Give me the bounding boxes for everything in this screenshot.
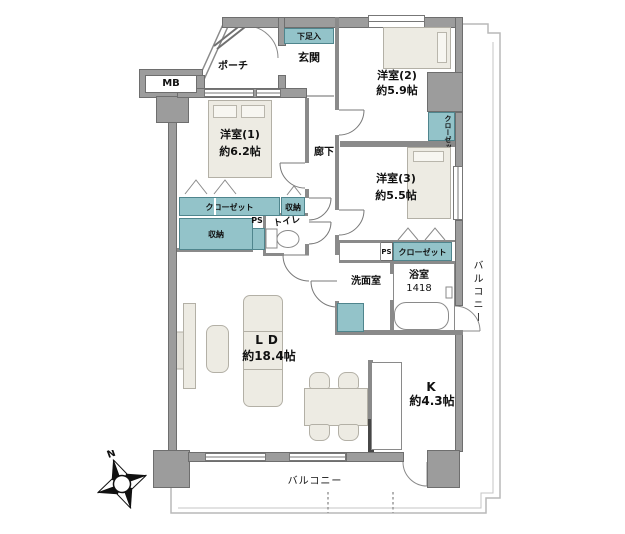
toilet-door-arc	[309, 222, 331, 244]
closet-room3-label: クローゼット	[394, 248, 451, 257]
dining-table	[304, 388, 368, 426]
washing-machine	[337, 303, 364, 332]
pillow	[437, 32, 447, 63]
dining-chair	[338, 424, 359, 441]
storage-door-arc	[309, 198, 331, 220]
wall	[455, 220, 463, 306]
meter-box-label: MB	[145, 75, 197, 93]
room3-size: 約5.5帖	[364, 190, 428, 203]
shoe-cabinet: 下足入	[284, 28, 334, 44]
porch-label: ポーチ	[210, 61, 256, 73]
entrance-label: 玄関	[286, 52, 332, 65]
dining-chair	[309, 424, 330, 441]
pipe-space-bath-label: PS	[381, 248, 392, 256]
ld-name: LD	[234, 334, 304, 348]
pillow	[213, 105, 237, 118]
ld-size: 約18.4帖	[234, 350, 304, 364]
dining-chair	[338, 372, 359, 389]
corridor-label: 廊下	[308, 147, 340, 159]
pillow	[413, 151, 444, 162]
shoe-cabinet-label: 下足入	[285, 32, 333, 41]
kitchen-counter	[371, 362, 402, 450]
bathroom-size: 1418	[397, 283, 441, 295]
pipe-space-corridor	[252, 228, 265, 250]
wall	[455, 112, 463, 168]
wall	[222, 17, 280, 28]
storage-large-label: 収納	[180, 230, 252, 239]
pillow	[241, 105, 265, 118]
balcony-right-label: バルコニー	[464, 242, 482, 342]
storage-small-label: 収納	[282, 203, 304, 212]
room2-door-arc	[339, 110, 364, 135]
sofa-seam	[244, 331, 282, 332]
closet-divider	[214, 198, 216, 215]
balcony-divider-dashed	[328, 492, 393, 513]
floor-plan: 下足入 クローゼット 収納 収納 PS クローゼット PS クローゼット MB …	[0, 0, 625, 534]
pipe-space-corridor-label: PS	[247, 216, 267, 225]
corridor-wall	[335, 17, 339, 110]
washroom-label: 洗面室	[340, 276, 392, 288]
corridor-wall	[305, 244, 309, 255]
wall-corner-block	[427, 450, 460, 488]
storage-small: 収納	[281, 197, 305, 216]
room3-door-arc	[339, 210, 364, 235]
wall-bottom	[346, 452, 404, 462]
compass-north-label: N	[106, 450, 118, 461]
closet1-fold-marks	[185, 180, 301, 195]
bathroom-label: 浴室	[397, 270, 441, 282]
sofa-seam	[244, 369, 282, 370]
wall	[455, 17, 463, 74]
washroom-door-arc	[311, 281, 337, 307]
wall	[156, 96, 189, 123]
balcony-bottom-label: バルコニー	[280, 476, 350, 488]
room3-name: 洋室(3)	[364, 173, 428, 186]
wall-left	[168, 121, 177, 452]
room2-name: 洋室(2)	[365, 70, 429, 83]
room1-door-arc	[280, 163, 305, 188]
room1-size: 約6.2帖	[208, 146, 272, 159]
kitchen-size: 約4.3帖	[403, 395, 461, 409]
toilet-label: トイレ	[267, 214, 306, 230]
dining-chair	[309, 372, 330, 389]
toilet-bottom-wall	[263, 253, 284, 256]
entrance-door-arc	[245, 26, 278, 58]
room2-size: 約5.9帖	[365, 85, 429, 98]
washbasin-counter	[339, 242, 381, 261]
window-room1-small	[256, 89, 281, 97]
toilet-bowl	[277, 231, 299, 248]
window-room3	[453, 166, 463, 220]
closet3-fold-marks	[398, 228, 445, 240]
wall-corner-block	[153, 450, 190, 488]
kitchen-name: K	[420, 381, 442, 395]
closet-room1: クローゼット	[179, 197, 280, 216]
wall-corner-column	[427, 72, 463, 112]
toilet-tank	[266, 229, 277, 248]
storage-large: 収納	[179, 218, 253, 250]
wall	[455, 330, 463, 452]
window-ld-2	[289, 453, 346, 461]
ld-door-arc	[283, 255, 309, 281]
window-ld-1	[205, 453, 266, 461]
wall	[284, 17, 370, 28]
window-room1	[204, 89, 254, 97]
closet-room2: クローゼット	[428, 112, 455, 141]
armchair	[206, 325, 229, 373]
closet-room1-label: クローゼット	[180, 203, 279, 212]
bathtub	[394, 302, 449, 330]
pipe-space-bath: PS	[380, 242, 393, 261]
tv-board	[183, 303, 196, 389]
balcony-door-kitchen-arc	[403, 462, 427, 486]
corridor-wall	[305, 189, 309, 198]
closet-room3: クローゼット	[393, 242, 452, 261]
room1-name: 洋室(1)	[208, 129, 272, 142]
compass: N	[90, 450, 154, 514]
